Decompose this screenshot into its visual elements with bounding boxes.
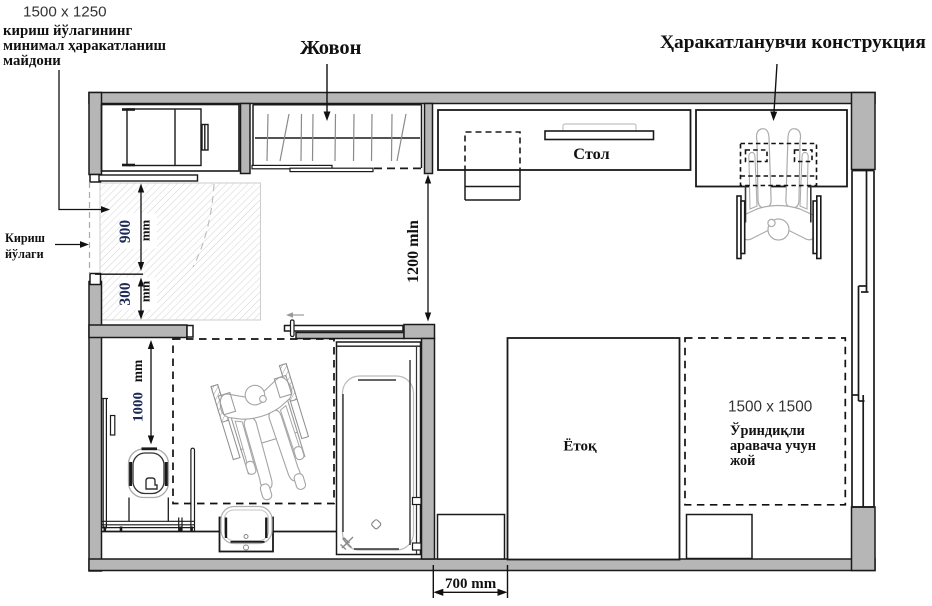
svg-text:Ётоқ: Ётоқ xyxy=(563,439,597,455)
svg-text:1500 x 1250: 1500 x 1250 xyxy=(23,4,107,21)
svg-text:mm: mm xyxy=(130,359,145,382)
svg-text:1000: 1000 xyxy=(130,392,146,422)
svg-text:Стол: Стол xyxy=(573,144,609,163)
svg-text:майдони: майдони xyxy=(3,53,61,69)
svg-text:Ўриндиқли: Ўриндиқли xyxy=(730,422,805,439)
svg-text:mm: mm xyxy=(138,220,152,242)
svg-text:аравача учун: аравача учун xyxy=(730,438,816,454)
svg-text:mm: mm xyxy=(138,281,152,303)
svg-text:минимал ҳаракатланиш: минимал ҳаракатланиш xyxy=(3,38,167,54)
svg-text:700 mm: 700 mm xyxy=(445,576,497,592)
svg-text:йўлаги: йўлаги xyxy=(5,247,44,261)
svg-text:300: 300 xyxy=(117,282,134,306)
svg-text:Ҳаракатланувчи конструкция: Ҳаракатланувчи конструкция xyxy=(660,32,926,53)
svg-text:жой: жой xyxy=(730,453,755,469)
svg-text:1200 mln: 1200 mln xyxy=(405,220,422,283)
svg-text:900: 900 xyxy=(117,220,134,244)
svg-text:1500 x 1500: 1500 x 1500 xyxy=(728,399,812,416)
svg-text:кириш йўлагининг: кириш йўлагининг xyxy=(3,23,132,39)
svg-text:Кириш: Кириш xyxy=(5,231,45,245)
svg-text:Жовон: Жовон xyxy=(300,37,362,59)
